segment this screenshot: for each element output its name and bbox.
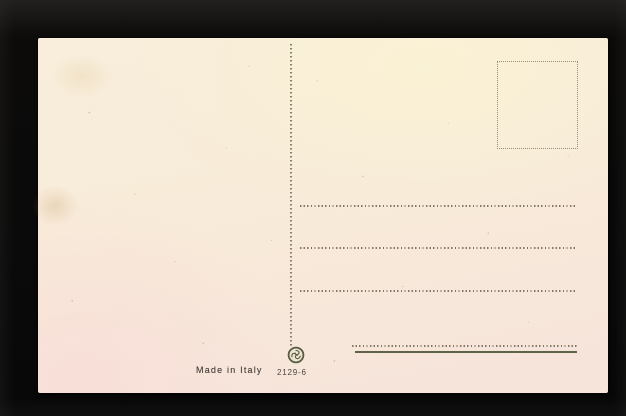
publisher-monogram-icon bbox=[287, 346, 305, 364]
postcard-back: Made in Italy 2129-6 bbox=[38, 38, 608, 393]
paper-stain bbox=[32, 186, 78, 226]
address-line bbox=[300, 205, 577, 207]
signature-underline bbox=[355, 351, 577, 353]
stamp-box bbox=[497, 61, 578, 149]
address-line bbox=[300, 247, 577, 249]
serial-number-label: 2129-6 bbox=[277, 368, 307, 377]
postcard-divider-line bbox=[290, 44, 292, 348]
photo-background: Made in Italy 2129-6 bbox=[0, 0, 626, 416]
paper-stain bbox=[52, 54, 112, 98]
address-line bbox=[300, 290, 577, 292]
signature-dotted-line bbox=[352, 345, 578, 347]
made-in-italy-label: Made in Italy bbox=[196, 365, 263, 375]
